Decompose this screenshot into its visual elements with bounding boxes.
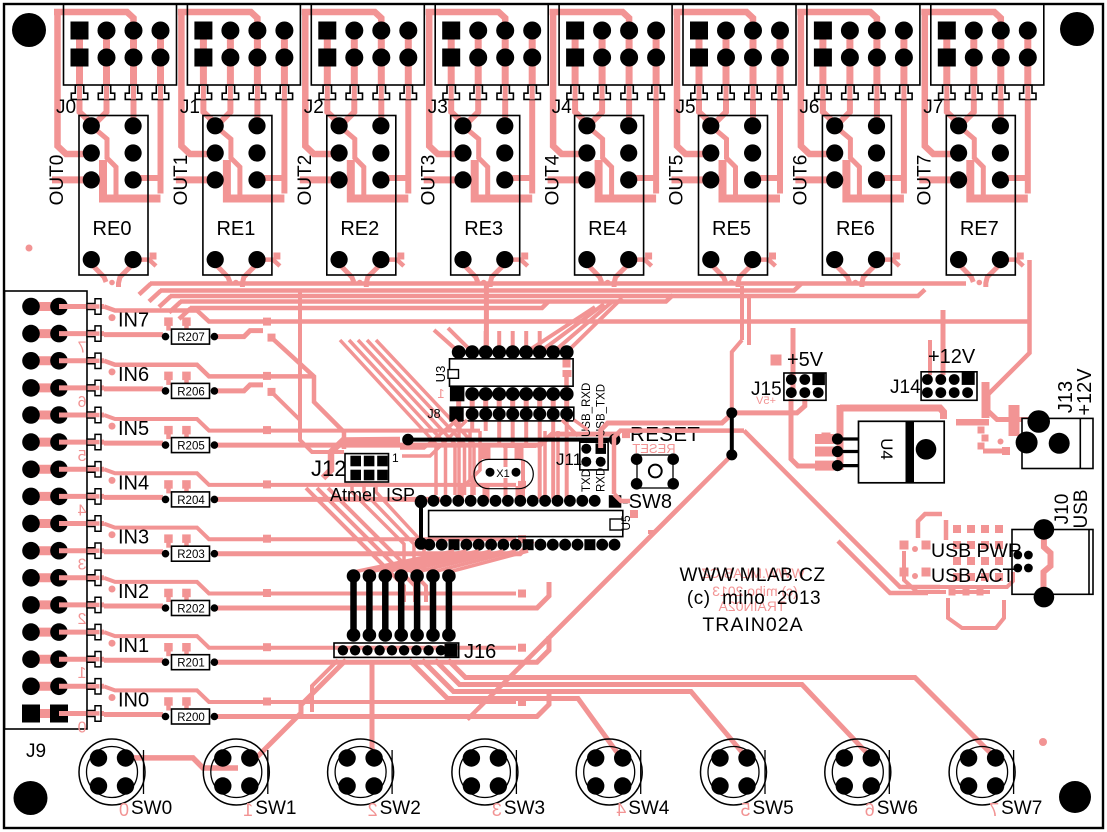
svg-text:IN3: IN3 bbox=[118, 527, 149, 549]
svg-text:5: 5 bbox=[740, 800, 750, 820]
svg-text:R206: R206 bbox=[177, 386, 205, 398]
svg-text:RE5: RE5 bbox=[712, 218, 751, 240]
svg-text:OUT0: OUT0 bbox=[47, 155, 68, 206]
svg-text:RE2: RE2 bbox=[340, 218, 379, 240]
svg-text:J5: J5 bbox=[676, 97, 696, 118]
svg-text:U3: U3 bbox=[433, 366, 448, 383]
svg-text:1: 1 bbox=[392, 451, 399, 465]
svg-text:IN7: IN7 bbox=[118, 310, 149, 332]
svg-text:U4: U4 bbox=[877, 438, 896, 460]
svg-text:SW5: SW5 bbox=[753, 798, 794, 819]
svg-text:1: 1 bbox=[243, 800, 253, 820]
svg-text:OUT7: OUT7 bbox=[914, 155, 935, 206]
svg-text:J16: J16 bbox=[464, 641, 496, 663]
svg-text:OUT4: OUT4 bbox=[543, 154, 564, 205]
svg-text:+12V: +12V bbox=[1074, 368, 1096, 416]
svg-text:R202: R202 bbox=[177, 604, 205, 616]
svg-text:J1: J1 bbox=[180, 97, 200, 118]
svg-text:0: 0 bbox=[77, 720, 86, 737]
svg-text:RE1: RE1 bbox=[216, 218, 255, 240]
svg-text:USB: USB bbox=[1071, 489, 1092, 528]
svg-text:J11: J11 bbox=[556, 450, 582, 469]
svg-text:2: 2 bbox=[77, 611, 86, 628]
svg-text:R205: R205 bbox=[177, 441, 205, 453]
svg-text:SW3: SW3 bbox=[504, 798, 545, 819]
svg-text:+5V: +5V bbox=[755, 395, 776, 407]
svg-text:IN6: IN6 bbox=[118, 364, 149, 386]
svg-text:OUT5: OUT5 bbox=[667, 155, 688, 206]
svg-text:SW7: SW7 bbox=[1001, 798, 1042, 819]
svg-text:OUT6: OUT6 bbox=[790, 155, 811, 206]
svg-text:SW1: SW1 bbox=[255, 798, 296, 819]
svg-text:RESET: RESET bbox=[632, 441, 675, 456]
svg-text:SW4: SW4 bbox=[628, 798, 670, 819]
svg-text:RE7: RE7 bbox=[960, 218, 999, 240]
svg-text:2: 2 bbox=[368, 800, 378, 820]
svg-text:1: 1 bbox=[437, 386, 444, 401]
svg-text:RXD: RXD bbox=[596, 468, 608, 492]
svg-text:+12V: +12V bbox=[928, 346, 976, 368]
svg-text:IN0: IN0 bbox=[118, 690, 149, 712]
svg-text:Atmel ISP: Atmel ISP bbox=[330, 485, 415, 505]
svg-text:J10: J10 bbox=[1052, 494, 1073, 525]
svg-text:R207: R207 bbox=[177, 332, 205, 344]
svg-text:J8: J8 bbox=[427, 407, 440, 421]
svg-text:WWW.MLAB.CZ: WWW.MLAB.CZ bbox=[680, 565, 826, 586]
svg-text:OUT1: OUT1 bbox=[171, 155, 192, 206]
svg-text:USB ACT: USB ACT bbox=[931, 565, 1015, 587]
svg-text:6: 6 bbox=[77, 394, 86, 411]
svg-text:OUT2: OUT2 bbox=[295, 155, 316, 206]
svg-text:R204: R204 bbox=[177, 495, 205, 507]
svg-text:R201: R201 bbox=[177, 658, 205, 670]
svg-text:RE0: RE0 bbox=[93, 218, 132, 240]
svg-text:J3: J3 bbox=[428, 97, 448, 118]
svg-text:IN1: IN1 bbox=[118, 635, 149, 657]
svg-text:R200: R200 bbox=[177, 712, 205, 724]
svg-text:USB PWR: USB PWR bbox=[931, 540, 1022, 562]
svg-text:RE6: RE6 bbox=[836, 218, 875, 240]
svg-text:RE3: RE3 bbox=[464, 218, 503, 240]
svg-text:J7: J7 bbox=[923, 97, 943, 118]
svg-text:J14: J14 bbox=[890, 377, 921, 398]
svg-text:OUT3: OUT3 bbox=[419, 155, 440, 206]
svg-text:SW0: SW0 bbox=[131, 798, 172, 819]
svg-text:J2: J2 bbox=[304, 97, 324, 118]
svg-text:J12: J12 bbox=[311, 456, 346, 481]
svg-text:0: 0 bbox=[119, 800, 129, 820]
svg-text:J4: J4 bbox=[552, 97, 573, 118]
svg-text:3: 3 bbox=[77, 557, 86, 574]
svg-text:X1: X1 bbox=[496, 468, 509, 480]
svg-text:3: 3 bbox=[492, 800, 502, 820]
svg-text:R203: R203 bbox=[177, 549, 205, 561]
svg-text:IN2: IN2 bbox=[118, 581, 149, 603]
svg-text:(c) miho 2013: (c) miho 2013 bbox=[687, 588, 821, 609]
svg-text:5: 5 bbox=[77, 448, 86, 465]
svg-text:IN4: IN4 bbox=[118, 472, 149, 494]
svg-text:J0: J0 bbox=[56, 97, 76, 118]
svg-text:SW6: SW6 bbox=[877, 798, 918, 819]
svg-text:+5V: +5V bbox=[787, 349, 824, 371]
svg-text:4: 4 bbox=[616, 800, 626, 820]
svg-text:4: 4 bbox=[77, 502, 86, 519]
svg-text:TXD: TXD bbox=[581, 469, 593, 492]
svg-text:TRAIN02A: TRAIN02A bbox=[702, 614, 803, 636]
svg-text:J6: J6 bbox=[799, 97, 819, 118]
svg-text:RE4: RE4 bbox=[588, 218, 627, 240]
svg-text:1: 1 bbox=[77, 665, 86, 682]
svg-text:6: 6 bbox=[865, 800, 875, 820]
svg-text:7: 7 bbox=[77, 340, 86, 357]
svg-text:7: 7 bbox=[989, 800, 999, 820]
svg-text:J9: J9 bbox=[26, 741, 46, 762]
svg-text:SW2: SW2 bbox=[380, 798, 421, 819]
svg-text:IN5: IN5 bbox=[118, 418, 149, 440]
